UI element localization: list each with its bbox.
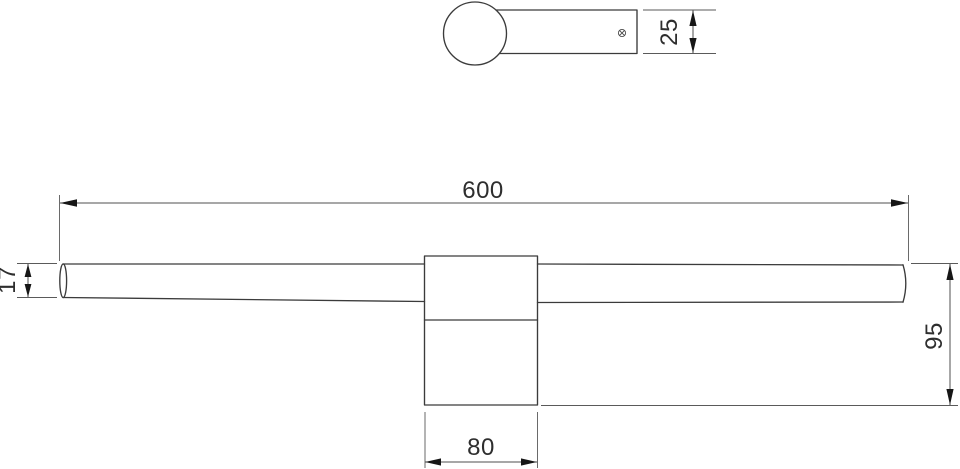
dim-25-arrow-down	[689, 38, 696, 53]
dim-17-label: 17	[0, 266, 21, 294]
dim-80-arrow-left	[425, 458, 441, 465]
light-tube-left	[60, 264, 425, 302]
mount-bracket	[425, 256, 538, 405]
technical-drawing-canvas: 25	[0, 0, 960, 469]
light-tube-right	[538, 264, 906, 303]
dim-95-arrow-up	[946, 264, 953, 280]
dim-arm-depth: 25	[643, 10, 716, 54]
dim-bracket-width: 80	[425, 412, 538, 468]
dim-25-label: 25	[656, 18, 683, 46]
dim-17-arrow-up	[25, 264, 32, 277]
tube-left-end-cap	[60, 264, 67, 298]
dim-600-arrow-right	[891, 199, 908, 207]
dim-25-arrow-up	[689, 11, 696, 27]
screw-head-icon	[618, 29, 625, 36]
front-view: 600 17 95	[0, 177, 958, 468]
bracket-outline	[425, 256, 538, 405]
dim-600-arrow-left	[60, 199, 77, 207]
technical-drawing-page: 25	[0, 0, 960, 469]
dim-tube-diameter: 17	[0, 264, 57, 298]
dim-overall-depth: 95	[541, 264, 958, 406]
tube-right-end-cap	[903, 265, 906, 302]
dim-80-label: 80	[467, 434, 495, 461]
tube-left-bottom-edge	[63, 298, 425, 302]
dim-17-arrow-down	[25, 284, 32, 297]
dim-80-arrow-right	[521, 458, 537, 465]
dim-600-label: 600	[462, 177, 504, 204]
top-view: 25	[444, 2, 717, 65]
lamp-head-circle	[444, 2, 507, 65]
dim-overall-length: 600	[60, 177, 909, 261]
tube-right-bottom-edge	[538, 302, 904, 303]
dim-95-label: 95	[921, 322, 948, 350]
dim-95-arrow-down	[946, 389, 953, 405]
tube-right-top-edge	[538, 264, 904, 265]
